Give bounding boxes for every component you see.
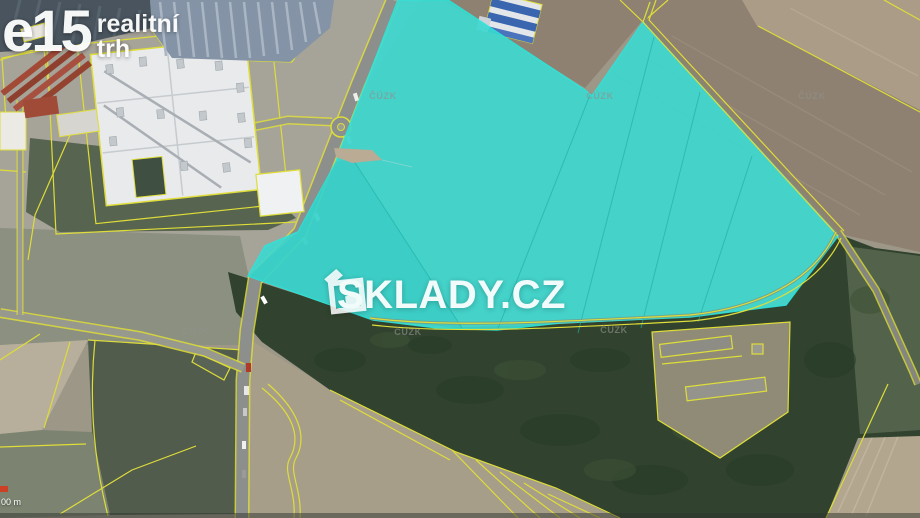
sklady-watermark: SKLADY.CZ xyxy=(323,269,566,318)
e15-logo-sub2: trh xyxy=(97,37,179,62)
cuzk-attribution: ČÚZK xyxy=(369,91,396,101)
small-warehouse xyxy=(256,170,304,216)
aerial-map-screenshot: e15 realitní trh SKLADY.CZ ČÚZK ČÚZK ČÚZ… xyxy=(0,0,920,518)
field-left-middle xyxy=(0,228,250,345)
e15-logo-sub1: realitní xyxy=(97,12,179,37)
map-canvas xyxy=(0,0,920,518)
bottom-dark-strip xyxy=(0,513,920,518)
e15-logo-text: e15 xyxy=(2,4,90,59)
e15-logo: e15 realitní trh xyxy=(2,4,179,62)
cuzk-attribution: ČÚZK xyxy=(394,327,421,337)
cuzk-attribution: ČÚZK xyxy=(586,91,613,101)
dark-building xyxy=(132,157,166,198)
cuzk-attribution: ČÚZK xyxy=(600,325,627,335)
cuzk-attribution: ČÚZK xyxy=(182,326,209,336)
map-scale-label: 00 m xyxy=(1,497,21,507)
warehouse-roof xyxy=(90,38,261,205)
map-scale-bar xyxy=(0,486,8,492)
cuzk-attribution: ČÚZK xyxy=(798,91,825,101)
